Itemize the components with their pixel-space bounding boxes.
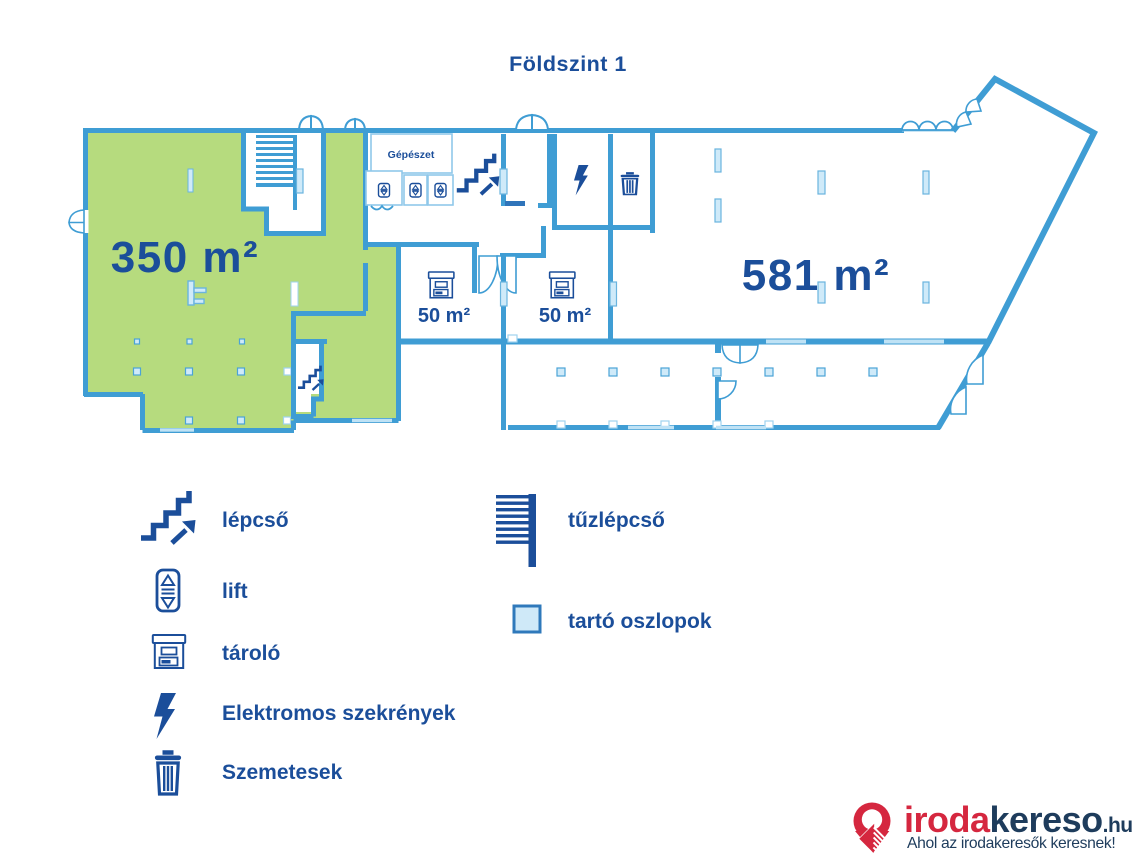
svg-text:tűzlépcső: tűzlépcső [568, 509, 665, 532]
svg-text:Gépészet: Gépészet [388, 149, 435, 161]
svg-text:lépcső: lépcső [222, 509, 289, 532]
svg-text:50 m²: 50 m² [539, 305, 592, 327]
svg-text:tároló: tároló [222, 642, 280, 665]
svg-text:350 m²: 350 m² [111, 233, 259, 282]
svg-text:581 m²: 581 m² [742, 251, 890, 300]
svg-text:tartó oszlopok: tartó oszlopok [568, 610, 712, 633]
svg-text:Ahol az irodakeresők keresnek!: Ahol az irodakeresők keresnek! [907, 835, 1115, 852]
svg-text:irodakereso.hu: irodakereso.hu [904, 799, 1133, 840]
svg-text:lift: lift [222, 580, 248, 603]
svg-text:Földszint 1: Földszint 1 [509, 52, 627, 76]
svg-text:Elektromos szekrények: Elektromos szekrények [222, 702, 456, 725]
svg-text:Szemetesek: Szemetesek [222, 761, 343, 784]
svg-text:50 m²: 50 m² [418, 305, 471, 327]
